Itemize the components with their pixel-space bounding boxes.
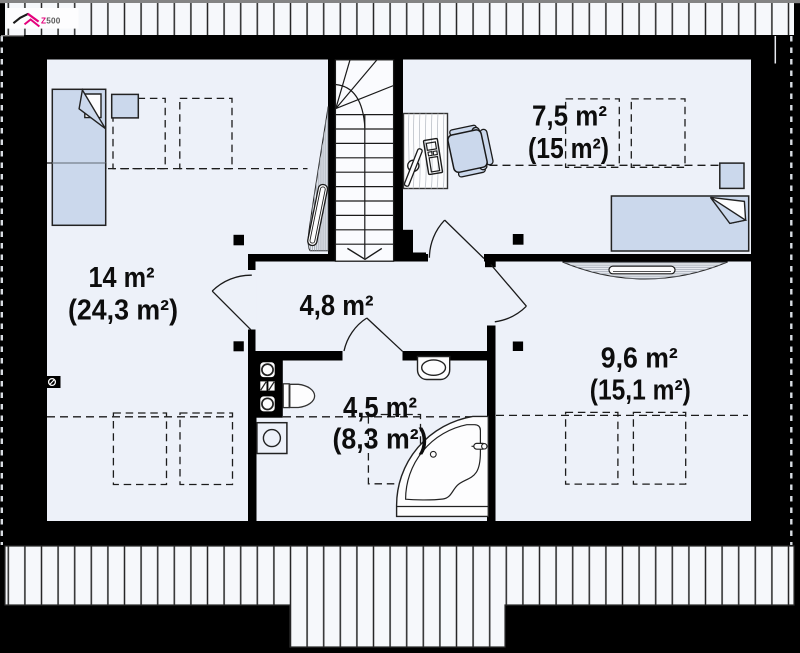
svg-text:Z500: Z500 bbox=[41, 17, 61, 26]
svg-text:4,5 m²: 4,5 m² bbox=[343, 392, 417, 424]
svg-text:(15 m²): (15 m²) bbox=[528, 133, 609, 165]
svg-text:4,8 m²: 4,8 m² bbox=[300, 290, 374, 322]
svg-text:(8,3 m²): (8,3 m²) bbox=[333, 424, 428, 456]
svg-text:(15,1 m²): (15,1 m²) bbox=[590, 375, 691, 407]
svg-text:7,5 m²: 7,5 m² bbox=[532, 101, 607, 133]
svg-text:14 m²: 14 m² bbox=[89, 262, 155, 294]
svg-text:9,6 m²: 9,6 m² bbox=[601, 342, 678, 374]
svg-text:(24,3 m²): (24,3 m²) bbox=[68, 295, 178, 327]
